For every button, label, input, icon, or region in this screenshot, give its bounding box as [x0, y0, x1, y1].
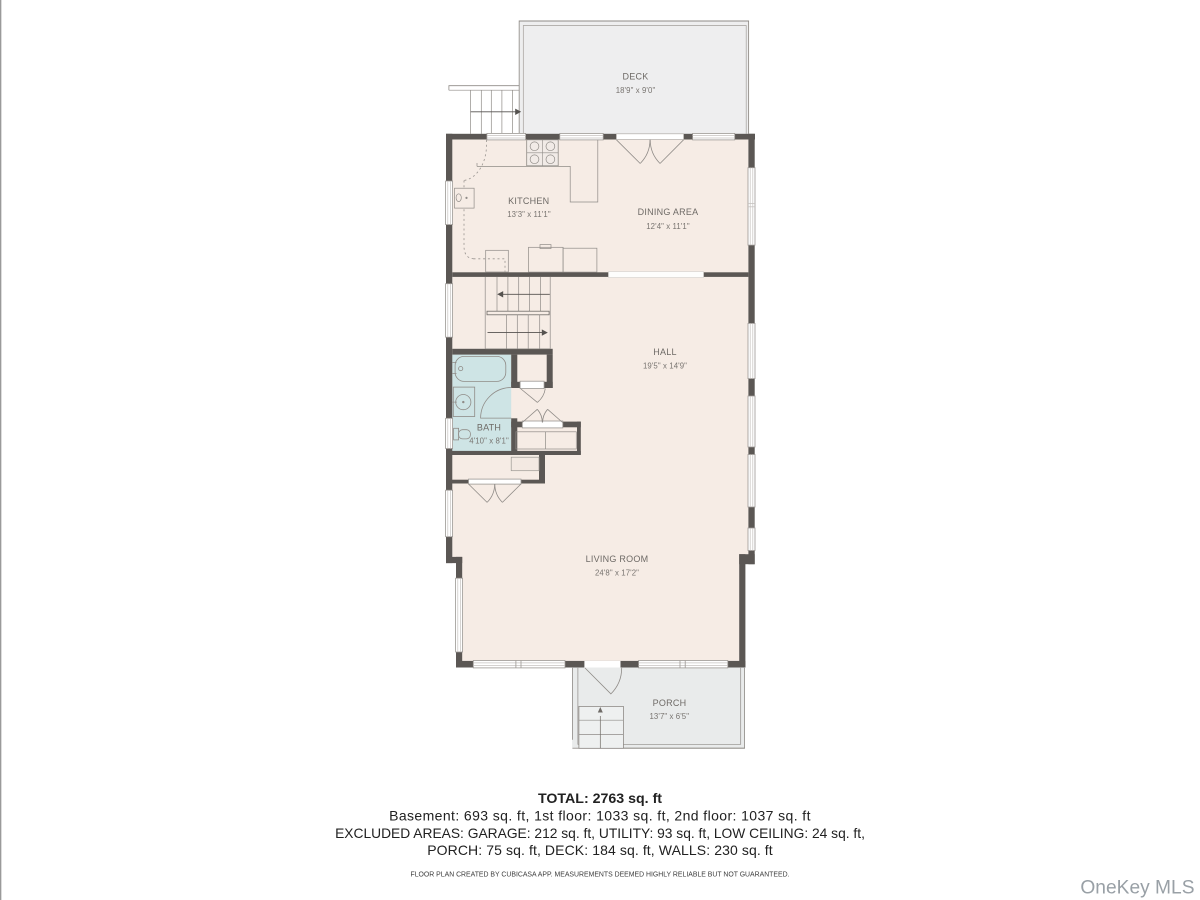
svg-text:DECK: DECK: [622, 72, 648, 82]
svg-text:KITCHEN: KITCHEN: [508, 196, 549, 206]
svg-text:24'8" x 17'2": 24'8" x 17'2": [595, 569, 639, 578]
svg-text:LIVING ROOM: LIVING ROOM: [586, 554, 649, 564]
svg-text:TOTAL: 2763 sq. ft: TOTAL: 2763 sq. ft: [538, 791, 662, 807]
svg-text:BATH: BATH: [477, 423, 501, 433]
svg-text:19'5" x 14'9": 19'5" x 14'9": [643, 362, 687, 371]
svg-text:EXCLUDED AREAS: GARAGE: 212 sq: EXCLUDED AREAS: GARAGE: 212 sq. ft, UTIL…: [335, 826, 865, 841]
svg-text:HALL: HALL: [653, 347, 677, 357]
svg-text:OneKey MLS: OneKey MLS: [1080, 878, 1194, 899]
svg-text:13'7" x 6'5": 13'7" x 6'5": [649, 712, 689, 721]
svg-text:18'9" x 9'0": 18'9" x 9'0": [616, 86, 656, 95]
svg-text:4'10" x 8'1": 4'10" x 8'1": [469, 437, 509, 446]
svg-text:FLOOR PLAN CREATED BY CUBICASA: FLOOR PLAN CREATED BY CUBICASA APP. MEAS…: [411, 872, 790, 879]
svg-text:PORCH: 75 sq. ft, DECK: 184 sq: PORCH: 75 sq. ft, DECK: 184 sq. ft, WALL…: [427, 842, 773, 858]
svg-text:DINING AREA: DINING AREA: [638, 207, 699, 217]
svg-text:12'4" x 11'1": 12'4" x 11'1": [646, 222, 690, 231]
svg-text:13'3" x 11'1": 13'3" x 11'1": [507, 210, 551, 219]
svg-text:PORCH: PORCH: [653, 698, 687, 708]
svg-text:Basement: 693 sq. ft, 1st floo: Basement: 693 sq. ft, 1st floor: 1033 sq…: [389, 808, 811, 824]
